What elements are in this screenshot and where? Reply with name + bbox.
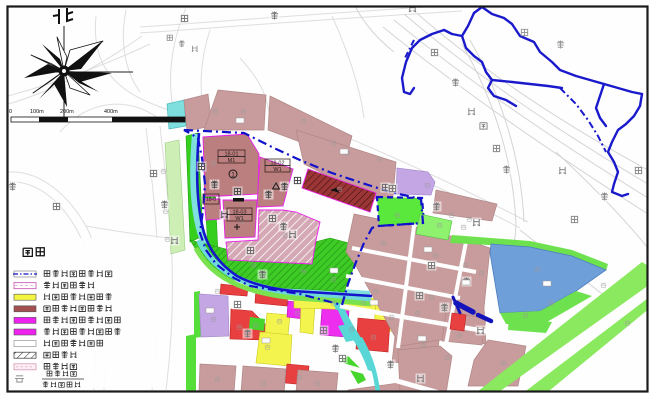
svg-text:18-01: 18-01 xyxy=(224,152,238,158)
svg-text:18-0: 18-0 xyxy=(206,197,216,203)
svg-text:W1: W1 xyxy=(235,216,243,222)
svg-text:18-02: 18-02 xyxy=(270,161,284,167)
svg-text:18-03: 18-03 xyxy=(232,210,246,216)
svg-text:0: 0 xyxy=(9,109,12,115)
svg-text:W1: W1 xyxy=(273,167,281,173)
svg-text:100m: 100m xyxy=(30,109,44,115)
svg-text:200m: 200m xyxy=(60,109,74,115)
svg-text:400m: 400m xyxy=(104,109,118,115)
svg-text:M1: M1 xyxy=(228,158,236,164)
